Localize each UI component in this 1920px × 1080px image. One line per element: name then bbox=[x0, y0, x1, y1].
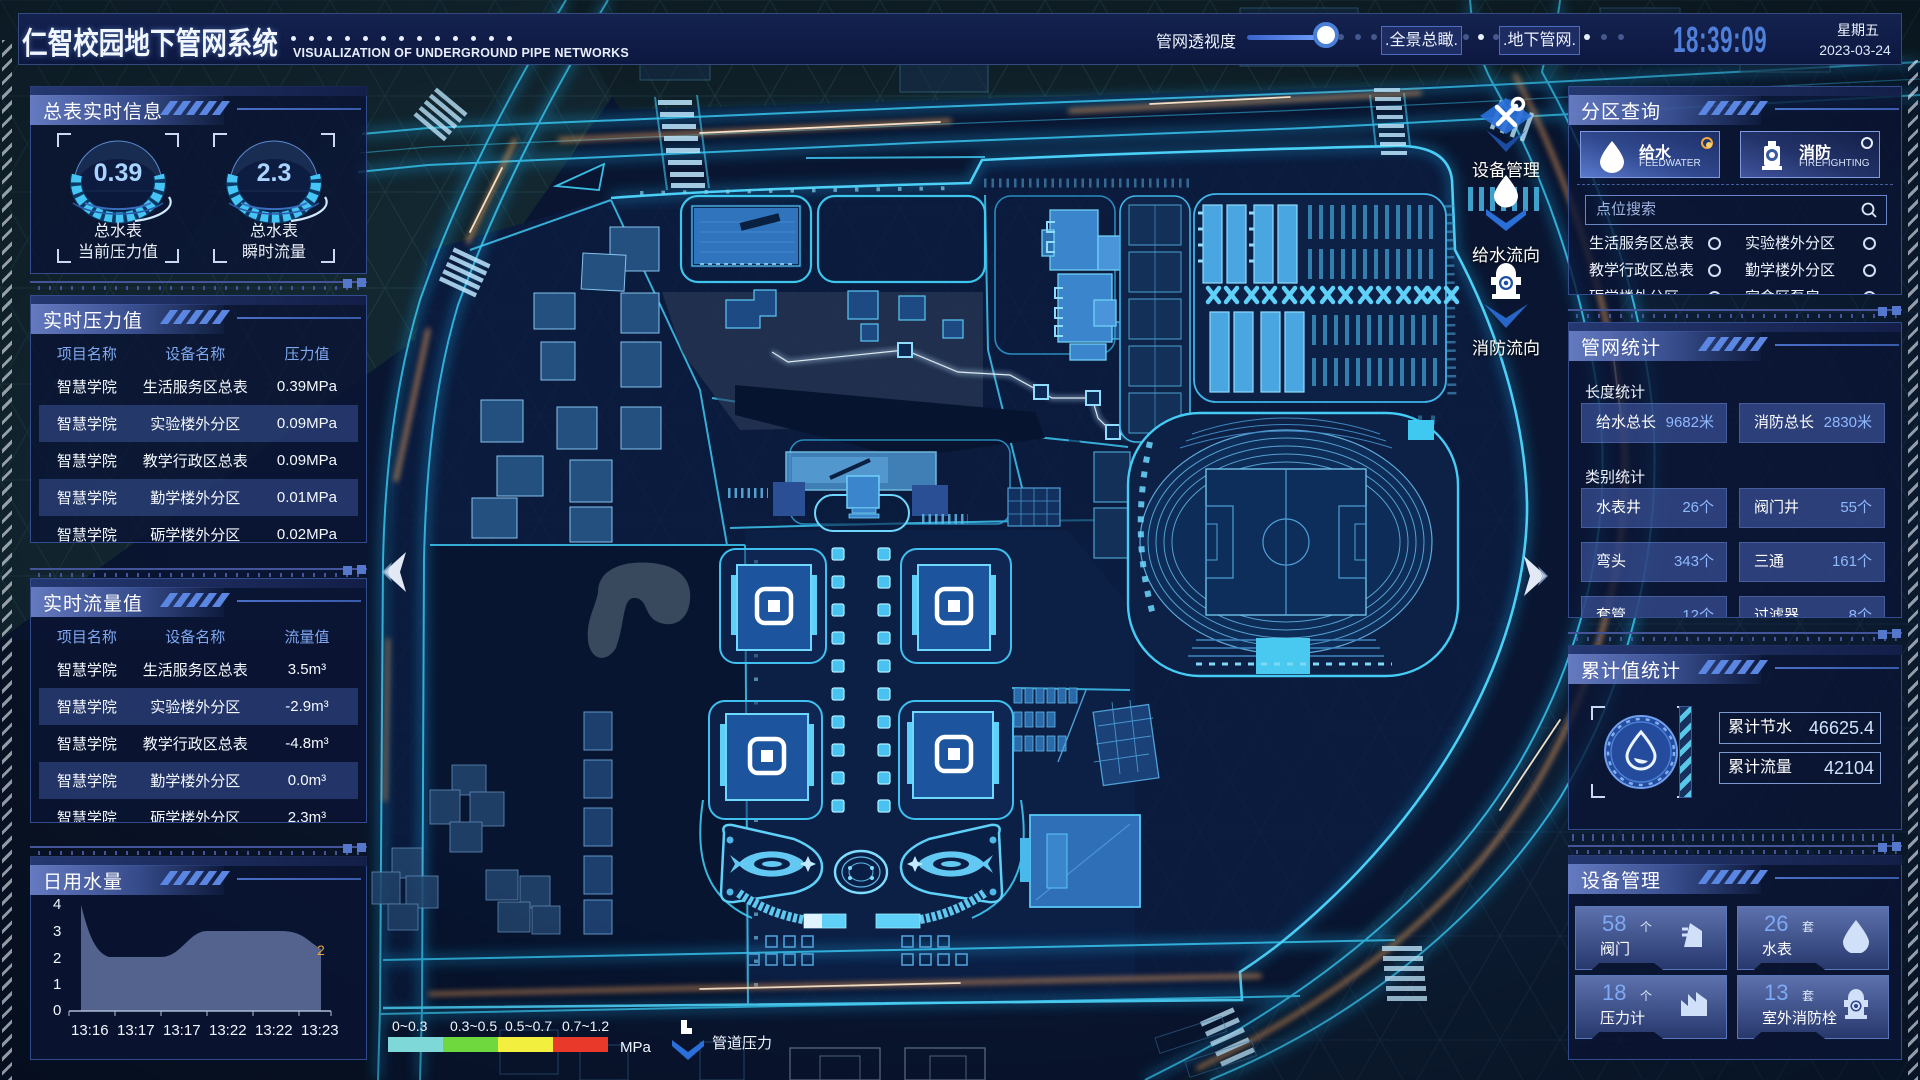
svg-text:0.39: 0.39 bbox=[94, 159, 143, 187]
svg-text:13:23: 13:23 bbox=[301, 1022, 339, 1039]
svg-text:13:16: 13:16 bbox=[71, 1022, 109, 1039]
svg-text:3: 3 bbox=[53, 923, 61, 940]
svg-text:0: 0 bbox=[53, 1002, 61, 1019]
svg-text:13:22: 13:22 bbox=[255, 1022, 293, 1039]
svg-text:2: 2 bbox=[53, 950, 61, 967]
svg-text:4: 4 bbox=[53, 897, 61, 913]
svg-text:13:22: 13:22 bbox=[209, 1022, 247, 1039]
svg-text:2: 2 bbox=[317, 942, 325, 958]
svg-text:13:17: 13:17 bbox=[163, 1022, 201, 1039]
svg-text:2.3: 2.3 bbox=[257, 159, 292, 187]
svg-text:1: 1 bbox=[53, 976, 61, 993]
svg-text:13:17: 13:17 bbox=[117, 1022, 155, 1039]
